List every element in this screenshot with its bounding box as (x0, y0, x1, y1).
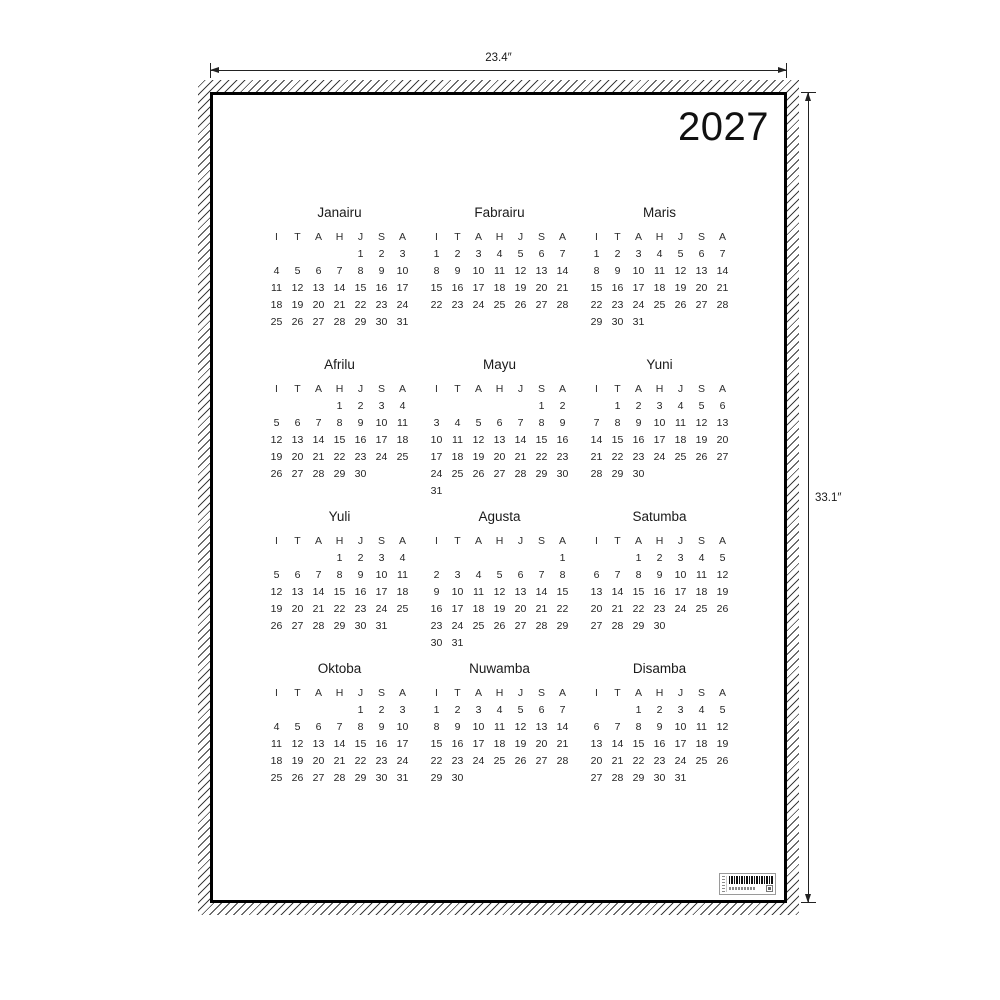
empty-cell (426, 550, 447, 567)
day-cell: 9 (552, 415, 573, 432)
day-letter: A (552, 533, 573, 550)
day-letter: J (670, 533, 691, 550)
day-letter: J (510, 229, 531, 246)
width-dimension-label: 23.4″ (210, 52, 787, 64)
day-cell: 25 (649, 297, 670, 314)
day-cell: 24 (426, 466, 447, 483)
year-title: 2027 (678, 107, 769, 147)
day-cell: 17 (392, 736, 413, 753)
day-cell: 23 (607, 297, 628, 314)
day-cell: 1 (329, 398, 350, 415)
day-cell: 9 (649, 567, 670, 584)
day-cell: 31 (392, 314, 413, 331)
day-cell: 14 (329, 736, 350, 753)
month-grid: ITAHJSA123456789101112131415161718192021… (266, 533, 413, 635)
day-cell: 22 (607, 449, 628, 466)
month-grid: ITAHJSA123456789101112131415161718192021… (266, 685, 413, 787)
day-cell: 10 (649, 415, 670, 432)
day-cell: 15 (329, 432, 350, 449)
day-cell: 9 (350, 415, 371, 432)
empty-cell (691, 314, 712, 331)
day-letter: S (691, 533, 712, 550)
day-cell: 28 (329, 770, 350, 787)
day-letter: T (287, 533, 308, 550)
month-grid: ITAHJSA123456789101112131415161718192021… (426, 381, 573, 500)
day-cell: 6 (308, 263, 329, 280)
empty-cell (510, 483, 531, 500)
calendar-poster-mockup: 23.4″ 33.1″ 2027 Janairu ITAHJSA12345678… (0, 0, 1000, 1000)
day-cell: 7 (607, 567, 628, 584)
day-cell: 15 (628, 736, 649, 753)
day-letter: J (350, 381, 371, 398)
month-grid: ITAHJSA123456789101112131415161718192021… (266, 229, 413, 331)
day-cell: 23 (649, 601, 670, 618)
empty-cell (468, 483, 489, 500)
day-cell: 5 (266, 415, 287, 432)
day-cell: 20 (531, 280, 552, 297)
day-cell: 1 (426, 246, 447, 263)
day-cell: 21 (510, 449, 531, 466)
day-cell: 9 (628, 415, 649, 432)
month-grid: ITAHJSA123456789101112131415161718192021… (426, 533, 573, 652)
day-letter: A (468, 533, 489, 550)
empty-cell (531, 635, 552, 652)
day-cell: 24 (371, 449, 392, 466)
day-cell: 13 (531, 719, 552, 736)
day-letter: A (308, 533, 329, 550)
day-cell: 21 (712, 280, 733, 297)
day-cell: 13 (510, 584, 531, 601)
day-cell: 11 (392, 567, 413, 584)
day-letter: S (531, 229, 552, 246)
day-cell: 1 (426, 702, 447, 719)
day-cell: 26 (266, 466, 287, 483)
day-cell: 4 (691, 550, 712, 567)
empty-cell (468, 635, 489, 652)
day-cell: 14 (552, 263, 573, 280)
day-cell: 26 (691, 449, 712, 466)
day-letter: H (489, 533, 510, 550)
empty-cell (287, 246, 308, 263)
day-cell: 27 (308, 314, 329, 331)
empty-cell (426, 398, 447, 415)
day-cell: 10 (670, 719, 691, 736)
day-letter: J (510, 381, 531, 398)
day-letter: H (649, 381, 670, 398)
day-cell: 17 (371, 584, 392, 601)
day-cell: 22 (628, 753, 649, 770)
day-letter: A (392, 685, 413, 702)
day-cell: 21 (531, 601, 552, 618)
day-cell: 18 (691, 584, 712, 601)
day-letter: J (350, 533, 371, 550)
day-cell: 29 (350, 770, 371, 787)
day-cell: 3 (468, 246, 489, 263)
day-cell: 30 (350, 618, 371, 635)
day-cell: 30 (447, 770, 468, 787)
empty-cell (691, 770, 712, 787)
day-cell: 20 (586, 601, 607, 618)
day-cell: 17 (447, 601, 468, 618)
height-dimension: 33.1″ (799, 92, 849, 903)
month-grid: ITAHJSA123456789101112131415161718192021… (586, 381, 733, 483)
month-block: Yuli ITAHJSA1234567891011121314151617181… (266, 509, 413, 661)
day-cell: 8 (607, 415, 628, 432)
day-cell: 18 (649, 280, 670, 297)
day-letter: A (308, 381, 329, 398)
day-cell: 17 (649, 432, 670, 449)
day-cell: 1 (628, 550, 649, 567)
day-cell: 5 (489, 567, 510, 584)
day-cell: 22 (426, 297, 447, 314)
day-cell: 10 (392, 263, 413, 280)
day-cell: 31 (670, 770, 691, 787)
day-cell: 7 (308, 415, 329, 432)
day-letter: S (531, 685, 552, 702)
day-letter: T (607, 533, 628, 550)
day-cell: 7 (531, 567, 552, 584)
day-cell: 4 (649, 246, 670, 263)
month-block: Mayu ITAHJSA1234567891011121314151617181… (426, 357, 573, 509)
day-cell: 13 (489, 432, 510, 449)
arrow-up-icon (805, 92, 811, 101)
day-cell: 23 (447, 753, 468, 770)
day-cell: 11 (649, 263, 670, 280)
day-cell: 17 (628, 280, 649, 297)
month-grid: ITAHJSA123456789101112131415161718192021… (426, 685, 573, 787)
empty-cell (531, 550, 552, 567)
day-cell: 31 (628, 314, 649, 331)
day-cell: 22 (531, 449, 552, 466)
day-cell: 28 (329, 314, 350, 331)
day-cell: 16 (426, 601, 447, 618)
day-cell: 30 (649, 770, 670, 787)
day-cell: 3 (371, 550, 392, 567)
day-cell: 26 (712, 753, 733, 770)
day-cell: 12 (287, 280, 308, 297)
day-cell: 3 (392, 246, 413, 263)
day-cell: 14 (510, 432, 531, 449)
day-cell: 10 (447, 584, 468, 601)
day-letter: J (510, 685, 531, 702)
day-cell: 7 (329, 263, 350, 280)
hatched-frame: 2027 Janairu ITAHJSA12345678910111213141… (198, 80, 799, 915)
day-cell: 25 (266, 314, 287, 331)
day-cell: 20 (287, 449, 308, 466)
day-letter: I (586, 381, 607, 398)
day-cell: 6 (287, 567, 308, 584)
day-cell: 25 (489, 297, 510, 314)
day-cell: 28 (531, 618, 552, 635)
day-cell: 26 (287, 314, 308, 331)
day-letter: A (392, 229, 413, 246)
day-cell: 31 (447, 635, 468, 652)
day-cell: 5 (266, 567, 287, 584)
day-cell: 22 (426, 753, 447, 770)
day-cell: 30 (552, 466, 573, 483)
day-cell: 28 (607, 618, 628, 635)
day-cell: 23 (552, 449, 573, 466)
day-cell: 25 (691, 601, 712, 618)
arrow-right-icon (778, 67, 787, 73)
day-cell: 10 (670, 567, 691, 584)
empty-cell (649, 466, 670, 483)
empty-cell (649, 314, 670, 331)
day-cell: 24 (670, 753, 691, 770)
day-cell: 19 (691, 432, 712, 449)
empty-cell (510, 550, 531, 567)
day-cell: 24 (392, 753, 413, 770)
day-letter: S (371, 685, 392, 702)
months-grid: Janairu ITAHJSA1234567891011121314151617… (266, 205, 733, 813)
day-letter: T (607, 229, 628, 246)
day-cell: 24 (670, 601, 691, 618)
month-block: Yuni ITAHJSA1234567891011121314151617181… (586, 357, 733, 509)
empty-cell (468, 770, 489, 787)
day-cell: 12 (712, 719, 733, 736)
day-letter: S (371, 533, 392, 550)
day-cell: 8 (586, 263, 607, 280)
day-cell: 7 (510, 415, 531, 432)
month-block: Maris ITAHJSA123456789101112131415161718… (586, 205, 733, 357)
day-cell: 4 (670, 398, 691, 415)
barcode-corner-box (766, 885, 773, 892)
day-cell: 14 (531, 584, 552, 601)
day-cell: 2 (371, 246, 392, 263)
empty-cell (308, 398, 329, 415)
day-letter: H (329, 533, 350, 550)
day-cell: 16 (447, 280, 468, 297)
day-cell: 27 (489, 466, 510, 483)
day-cell: 19 (510, 280, 531, 297)
day-letter: J (670, 685, 691, 702)
day-letter: J (350, 685, 371, 702)
day-cell: 10 (628, 263, 649, 280)
day-cell: 6 (531, 702, 552, 719)
day-cell: 5 (712, 550, 733, 567)
empty-cell (447, 483, 468, 500)
day-letter: A (468, 229, 489, 246)
empty-cell (468, 398, 489, 415)
day-cell: 11 (468, 584, 489, 601)
empty-cell (586, 550, 607, 567)
month-name: Afrilu (266, 357, 413, 373)
day-letter: H (329, 229, 350, 246)
day-cell: 27 (586, 618, 607, 635)
day-cell: 28 (308, 618, 329, 635)
day-letter: T (447, 533, 468, 550)
month-name: Fabrairu (426, 205, 573, 221)
day-cell: 8 (426, 263, 447, 280)
day-cell: 23 (649, 753, 670, 770)
month-block: Agusta ITAHJSA12345678910111213141516171… (426, 509, 573, 661)
day-cell: 25 (691, 753, 712, 770)
day-cell: 1 (586, 246, 607, 263)
day-letter: A (712, 533, 733, 550)
day-cell: 12 (489, 584, 510, 601)
width-dimension-line (210, 70, 787, 71)
day-cell: 16 (649, 584, 670, 601)
day-letter: A (392, 533, 413, 550)
empty-cell (712, 618, 733, 635)
day-cell: 4 (691, 702, 712, 719)
day-cell: 20 (489, 449, 510, 466)
day-cell: 16 (649, 736, 670, 753)
day-cell: 2 (552, 398, 573, 415)
empty-cell (287, 398, 308, 415)
day-cell: 6 (531, 246, 552, 263)
day-cell: 18 (392, 584, 413, 601)
day-cell: 19 (712, 736, 733, 753)
month-block: Oktoba ITAHJSA12345678910111213141516171… (266, 661, 413, 813)
day-cell: 12 (266, 584, 287, 601)
day-cell: 28 (552, 753, 573, 770)
day-cell: 27 (531, 297, 552, 314)
empty-cell (392, 466, 413, 483)
day-cell: 13 (308, 736, 329, 753)
day-letter: H (489, 381, 510, 398)
day-cell: 29 (426, 770, 447, 787)
day-cell: 21 (607, 601, 628, 618)
empty-cell (510, 398, 531, 415)
day-cell: 2 (607, 246, 628, 263)
day-cell: 21 (552, 736, 573, 753)
day-cell: 29 (531, 466, 552, 483)
day-cell: 13 (287, 432, 308, 449)
day-letter: I (586, 533, 607, 550)
day-cell: 24 (649, 449, 670, 466)
empty-cell (287, 702, 308, 719)
day-cell: 11 (392, 415, 413, 432)
day-cell: 26 (468, 466, 489, 483)
day-cell: 15 (350, 280, 371, 297)
day-cell: 1 (552, 550, 573, 567)
empty-cell (712, 466, 733, 483)
day-cell: 23 (350, 449, 371, 466)
day-letter: I (426, 533, 447, 550)
day-letter: I (266, 229, 287, 246)
day-cell: 13 (586, 736, 607, 753)
day-cell: 17 (670, 584, 691, 601)
barcode-label (719, 873, 776, 895)
empty-cell (607, 550, 628, 567)
day-cell: 18 (489, 736, 510, 753)
day-cell: 19 (287, 753, 308, 770)
day-cell: 1 (350, 246, 371, 263)
empty-cell (691, 466, 712, 483)
day-cell: 29 (350, 314, 371, 331)
day-cell: 21 (552, 280, 573, 297)
day-cell: 2 (628, 398, 649, 415)
day-cell: 14 (586, 432, 607, 449)
day-cell: 2 (447, 702, 468, 719)
day-cell: 29 (552, 618, 573, 635)
empty-cell (670, 466, 691, 483)
day-cell: 11 (489, 263, 510, 280)
day-cell: 13 (531, 263, 552, 280)
day-cell: 18 (266, 297, 287, 314)
day-letter: J (350, 229, 371, 246)
day-letter: H (489, 685, 510, 702)
day-cell: 17 (670, 736, 691, 753)
day-cell: 27 (691, 297, 712, 314)
day-cell: 11 (447, 432, 468, 449)
day-cell: 31 (371, 618, 392, 635)
day-cell: 25 (392, 449, 413, 466)
day-cell: 26 (287, 770, 308, 787)
day-letter: T (607, 381, 628, 398)
day-cell: 15 (426, 280, 447, 297)
day-cell: 5 (510, 246, 531, 263)
day-letter: A (628, 381, 649, 398)
day-cell: 21 (329, 753, 350, 770)
day-cell: 16 (371, 280, 392, 297)
day-cell: 16 (371, 736, 392, 753)
month-name: Mayu (426, 357, 573, 373)
empty-cell (489, 635, 510, 652)
day-cell: 22 (586, 297, 607, 314)
width-dimension: 23.4″ (210, 52, 787, 82)
day-cell: 20 (691, 280, 712, 297)
day-cell: 19 (266, 601, 287, 618)
day-cell: 19 (670, 280, 691, 297)
day-letter: I (426, 229, 447, 246)
day-cell: 25 (468, 618, 489, 635)
day-letter: I (266, 533, 287, 550)
day-letter: I (586, 229, 607, 246)
day-cell: 1 (628, 702, 649, 719)
day-cell: 11 (489, 719, 510, 736)
day-cell: 9 (426, 584, 447, 601)
day-cell: 23 (350, 601, 371, 618)
day-cell: 21 (308, 449, 329, 466)
day-cell: 8 (350, 719, 371, 736)
empty-cell (510, 635, 531, 652)
day-cell: 16 (447, 736, 468, 753)
empty-cell (287, 550, 308, 567)
day-cell: 14 (308, 584, 329, 601)
day-letter: I (266, 685, 287, 702)
day-cell: 20 (308, 753, 329, 770)
day-cell: 3 (670, 550, 691, 567)
day-cell: 19 (468, 449, 489, 466)
empty-cell (489, 398, 510, 415)
day-letter: J (670, 229, 691, 246)
day-cell: 2 (447, 246, 468, 263)
empty-cell (308, 550, 329, 567)
day-letter: A (712, 685, 733, 702)
day-cell: 12 (287, 736, 308, 753)
day-cell: 10 (468, 719, 489, 736)
day-cell: 26 (670, 297, 691, 314)
empty-cell (329, 246, 350, 263)
day-cell: 3 (447, 567, 468, 584)
day-letter: S (371, 229, 392, 246)
day-cell: 30 (607, 314, 628, 331)
day-cell: 25 (447, 466, 468, 483)
day-cell: 25 (489, 753, 510, 770)
day-cell: 26 (266, 618, 287, 635)
day-cell: 9 (447, 263, 468, 280)
day-cell: 29 (607, 466, 628, 483)
day-cell: 18 (392, 432, 413, 449)
month-block: Janairu ITAHJSA1234567891011121314151617… (266, 205, 413, 357)
day-cell: 9 (371, 263, 392, 280)
day-cell: 2 (649, 550, 670, 567)
day-cell: 15 (426, 736, 447, 753)
empty-cell (447, 398, 468, 415)
day-cell: 24 (468, 753, 489, 770)
